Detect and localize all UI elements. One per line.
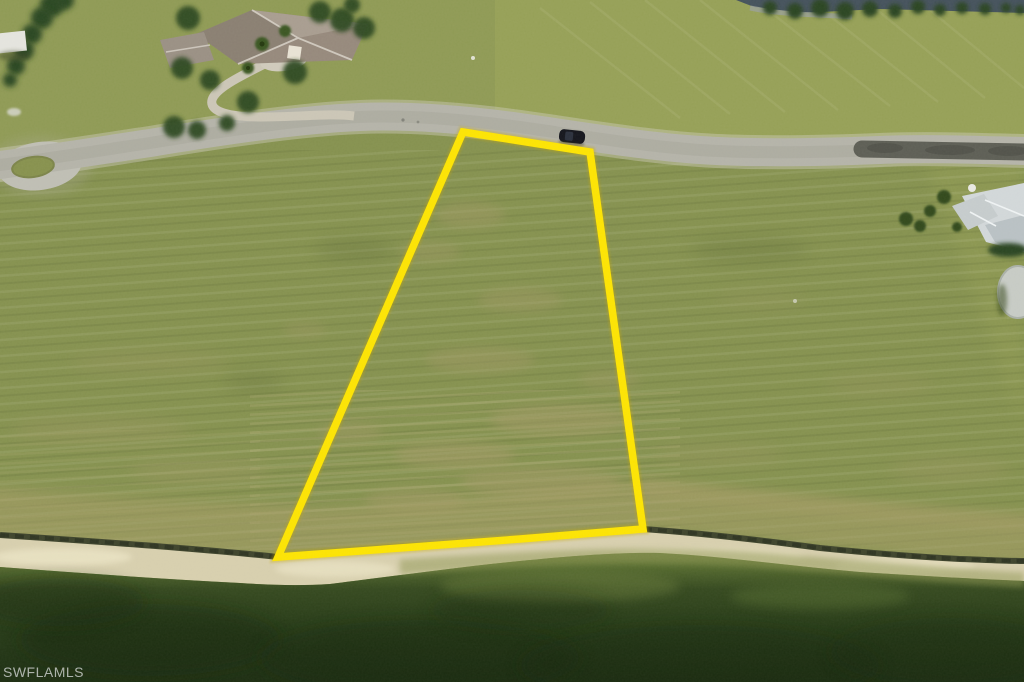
photo-grain [0, 0, 1024, 682]
aerial-photo: SWFLAMLS [0, 0, 1024, 682]
mls-watermark: SWFLAMLS [3, 664, 84, 680]
aerial-photo-canvas: SWFLAMLS [0, 0, 1024, 682]
